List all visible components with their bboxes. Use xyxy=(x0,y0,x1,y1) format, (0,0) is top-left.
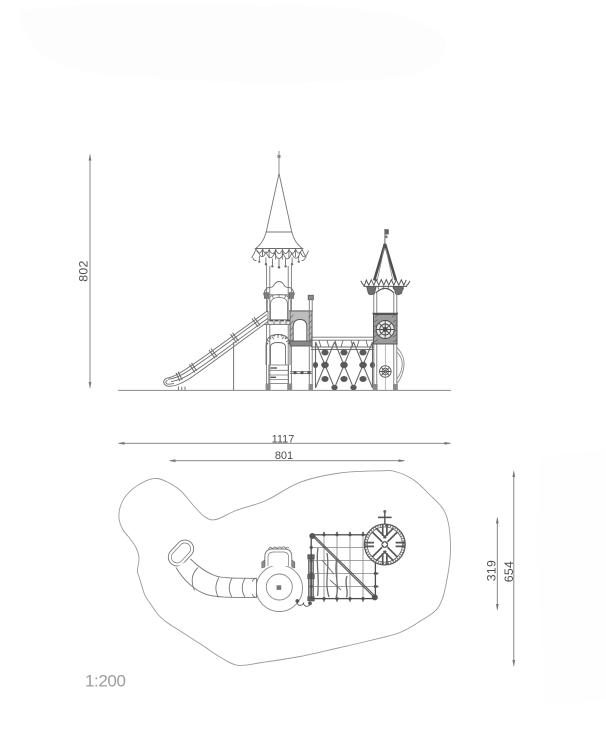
svg-text:654: 654 xyxy=(502,561,516,582)
svg-text:1117: 1117 xyxy=(272,433,295,445)
svg-text:802: 802 xyxy=(77,260,91,281)
svg-text:801: 801 xyxy=(275,450,293,462)
svg-text:1:200: 1:200 xyxy=(85,672,126,691)
svg-text:319: 319 xyxy=(484,560,498,581)
